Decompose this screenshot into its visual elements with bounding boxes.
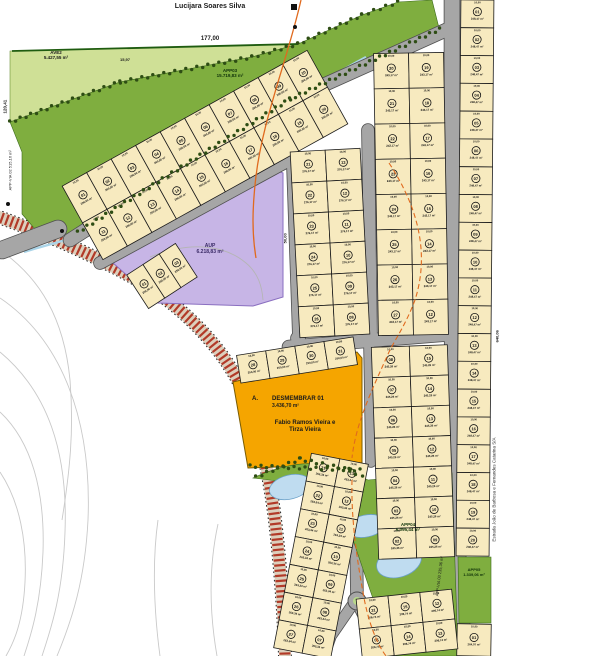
- tree-symbol: [206, 63, 209, 66]
- lot-area: 276,17 m²: [304, 200, 317, 205]
- lot: 10,0013248,47 m²: [458, 333, 491, 361]
- tree-symbol: [282, 465, 285, 468]
- lot-area: 276,17 m²: [344, 291, 357, 296]
- lot-front-dim: 10,00: [471, 624, 478, 628]
- tree-symbol: [279, 104, 282, 107]
- tree-symbol: [349, 467, 352, 470]
- tree-symbol: [264, 111, 267, 114]
- lot: 10,0003248,47 m²: [460, 55, 493, 83]
- lot: 10,0014245,26 m²: [410, 375, 449, 407]
- lot-front-dim: 10,00: [474, 28, 481, 32]
- tree-symbol: [308, 87, 311, 90]
- desmembrar-owner: Fabio Ramos Vieira e Tirza Vieira: [250, 420, 360, 434]
- lot-front-dim: 10,00: [473, 112, 480, 116]
- tree-symbol: [279, 48, 282, 51]
- lot-area: 276,17 m²: [339, 198, 352, 203]
- lot: 10,0016243,17 m²: [410, 158, 446, 194]
- left-road-label: APP-VIA 02 515,16 m²: [9, 135, 14, 205]
- tree-symbol: [354, 68, 357, 71]
- tree-symbol: [368, 59, 371, 62]
- tree-symbol: [184, 67, 187, 70]
- lot: 10,0013206,74 m²: [423, 619, 458, 652]
- lot: 10,0027263,34 m²: [274, 620, 308, 653]
- lot-area: 248,47 m²: [466, 545, 479, 549]
- tree-symbol: [129, 199, 132, 202]
- lot-front-dim: 10,00: [426, 229, 433, 233]
- lot-front-dim: 10,00: [388, 54, 395, 58]
- lot-area: 243,17 m²: [389, 284, 402, 288]
- tree-symbol: [66, 100, 69, 103]
- lot-front-dim: 10,00: [430, 497, 437, 501]
- tree-symbol: [313, 36, 316, 39]
- lot-area: 264,07 m²: [468, 642, 481, 646]
- lot: 10,0012263,34 m²: [329, 487, 363, 520]
- app04-area: 6.095,44 m²: [378, 527, 438, 532]
- right-road-dimension: 640,06: [496, 316, 501, 356]
- lot-front-dim: 10,00: [436, 621, 443, 626]
- tree-symbol: [95, 218, 98, 221]
- tree-symbol: [353, 469, 356, 472]
- tree-symbol: [234, 60, 237, 63]
- lot-front-dim: 10,00: [426, 376, 433, 380]
- lot: 10,0017243,17 m²: [410, 123, 446, 159]
- lot: 10,0009263,34 m²: [313, 570, 347, 603]
- lot: 10,0015248,47 m²: [457, 389, 490, 417]
- lot-boundary: [374, 88, 410, 124]
- lot: 10,0011263,34 m²: [324, 514, 358, 547]
- lot-front-dim: 10,00: [339, 149, 346, 153]
- tree-symbol: [328, 27, 331, 30]
- tree-symbol: [404, 45, 407, 48]
- lot: 10,0004245,26 m²: [376, 467, 415, 499]
- tree-symbol: [374, 59, 377, 62]
- lot-area: 248,47 m²: [468, 295, 481, 299]
- tree-symbol: [260, 474, 263, 477]
- lot-area: 245,26 m²: [428, 514, 441, 518]
- tree-symbol: [255, 117, 258, 120]
- tree-symbol: [250, 54, 253, 57]
- tree-symbol: [113, 81, 116, 84]
- tree-symbol: [355, 17, 358, 20]
- tree-symbol: [151, 182, 154, 185]
- tree-symbol: [100, 216, 103, 219]
- tree-symbol: [343, 466, 346, 469]
- lot: 10,0020243,17 m²: [374, 53, 410, 89]
- tree-symbol: [259, 464, 262, 467]
- tree-symbol: [379, 8, 382, 11]
- tree-symbol: [60, 100, 63, 103]
- tree-symbol: [50, 104, 53, 107]
- tree-symbol: [208, 147, 211, 150]
- lot: 10,0015245,26 m²: [409, 345, 448, 377]
- app04-area-label: APP04 6.095,44 m²: [378, 522, 438, 532]
- lot: 10,0005245,26 m²: [374, 437, 413, 469]
- lot-front-dim: 10,00: [427, 406, 434, 410]
- lot: 10,0015243,17 m²: [411, 193, 447, 229]
- tree-symbol: [304, 460, 307, 463]
- tree-symbol: [408, 40, 411, 43]
- lot: 10,0011245,26 m²: [414, 466, 453, 498]
- tree-symbol: [332, 464, 335, 467]
- lot: 10,0012248,47 m²: [458, 306, 491, 334]
- tree-symbol: [309, 468, 312, 471]
- tree-symbol: [339, 22, 342, 25]
- lot-boundary: [374, 53, 410, 89]
- tree-symbol: [179, 70, 182, 73]
- lot: 10,0021276,17 m²: [290, 150, 327, 183]
- lot-front-dim: 10,00: [470, 417, 477, 421]
- lot-front-dim: 10,00: [391, 468, 398, 472]
- road: [2, 229, 58, 250]
- ave2-area: 5.427,55 m²: [26, 55, 86, 60]
- lot: 10,0024276,17 m²: [295, 243, 332, 276]
- tree-symbol: [108, 85, 111, 88]
- tree-symbol: [104, 212, 107, 215]
- tree-symbol: [217, 60, 220, 63]
- lot-front-dim: 10,00: [388, 89, 395, 93]
- tree-symbol: [35, 112, 38, 115]
- lot-front-dim: 10,00: [471, 334, 478, 338]
- lot-boundary: [375, 124, 411, 160]
- lot-front-dim: 10,00: [308, 213, 315, 217]
- lot: 10,0012245,26 m²: [412, 436, 451, 468]
- lot: 10,0029250,00 m²: [266, 346, 300, 378]
- lot-area: 248,47 m²: [469, 211, 482, 215]
- lot-front-dim: 10,00: [341, 180, 348, 184]
- tree-symbol: [265, 470, 268, 473]
- tree-symbol: [360, 12, 363, 15]
- lot-front-dim: 10,00: [470, 473, 477, 477]
- lot: 10,0017248,47 m²: [457, 445, 490, 473]
- lot: 10,0008245,26 m²: [371, 346, 410, 378]
- lot: 10,0019243,17 m²: [409, 52, 445, 88]
- tree-symbol: [315, 462, 318, 465]
- lot: 10,0006248,47 m²: [459, 139, 492, 167]
- tree-symbol: [146, 76, 149, 79]
- contour-line: [0, 472, 25, 656]
- lot-area: 245,26 m²: [385, 364, 398, 368]
- tree-symbol: [271, 470, 274, 473]
- quadra-east-strip-south: 10,0001264,07 m²: [457, 624, 492, 656]
- lot-area: 245,26 m²: [386, 394, 399, 398]
- tree-symbol: [314, 87, 317, 90]
- tree-symbol: [285, 44, 288, 47]
- tree-symbol: [367, 12, 370, 15]
- contour-line: [0, 352, 65, 656]
- tree-symbol: [18, 115, 21, 118]
- tree-symbol: [198, 153, 201, 156]
- quadra-mid-left: 10,0021276,17 m²10,0013276,17 m²10,00222…: [290, 148, 370, 337]
- lot: 10,0001264,07 m²: [457, 624, 492, 656]
- tree-symbol: [142, 188, 145, 191]
- lot-front-dim: 10,00: [473, 139, 480, 143]
- lot-area: 248,47 m²: [470, 128, 483, 132]
- tree-symbol: [29, 112, 32, 115]
- lot-area: 243,17 m²: [388, 249, 401, 253]
- lot: 10,0012243,17 m²: [413, 299, 449, 335]
- lot-boundary: [409, 88, 445, 124]
- lot-area: 243,17 m²: [422, 178, 435, 182]
- tree-symbol: [334, 77, 337, 80]
- tree-symbol: [296, 41, 299, 44]
- tree-symbol: [428, 31, 431, 34]
- tree-symbol: [248, 463, 251, 466]
- lot-area: 243,17 m²: [386, 108, 399, 112]
- purple-edge-dimension: 50,00: [284, 220, 289, 256]
- lot-area: 243,17 m²: [389, 320, 402, 324]
- lot-area: 248,47 m²: [471, 44, 484, 48]
- lot-front-dim: 10,00: [391, 265, 398, 269]
- contour-line: [0, 412, 43, 656]
- tree-symbol: [372, 8, 375, 11]
- lot-area: 245,26 m²: [423, 363, 436, 367]
- lot-area: 276,17 m²: [302, 169, 315, 174]
- tree-symbol: [358, 467, 361, 470]
- top-boundary-dimension: 177,00: [150, 36, 270, 43]
- lot: 10,0030250,00 m²: [295, 342, 329, 374]
- lot-boundary: [409, 52, 445, 88]
- lot: 10,0014206,74 m²: [391, 622, 426, 655]
- tree-symbol: [302, 41, 305, 44]
- lot-area: 245,26 m²: [387, 425, 400, 429]
- lot-front-dim: 10,00: [471, 362, 478, 366]
- tree-symbol: [214, 146, 217, 149]
- tree-symbol: [361, 474, 364, 477]
- tree-symbol: [354, 473, 357, 476]
- tree-symbol: [217, 141, 220, 144]
- tree-symbol: [262, 51, 265, 54]
- tree-symbol: [85, 223, 88, 226]
- lot-front-dim: 10,00: [470, 529, 477, 533]
- tree-symbol: [344, 73, 347, 76]
- lot-boundary: [410, 158, 446, 194]
- tree-symbol: [394, 49, 397, 52]
- tree-symbol: [135, 78, 138, 81]
- lot-front-dim: 10,00: [401, 594, 408, 599]
- contour-line: [0, 250, 72, 520]
- tree-symbol: [45, 108, 48, 111]
- tree-symbol: [71, 96, 74, 99]
- tree-symbol: [303, 465, 306, 468]
- tree-symbol: [110, 211, 113, 214]
- lot-area: 243,17 m²: [421, 143, 434, 147]
- lot-boundary: [375, 159, 411, 195]
- tree-symbol: [398, 45, 401, 48]
- lot-front-dim: 10,00: [369, 598, 376, 603]
- lot: 10,0024263,34 m²: [290, 537, 324, 570]
- app03-area-label: APP03 15.719,83 m²: [198, 68, 262, 78]
- lot: 10,0012276,17 m²: [327, 179, 364, 212]
- lot: 10,0014248,47 m²: [458, 361, 491, 389]
- lot-front-dim: 10,00: [470, 445, 477, 449]
- tree-symbol: [299, 456, 302, 459]
- tree-symbol: [314, 466, 317, 469]
- lot-area: 276,17 m²: [345, 322, 358, 327]
- tree-symbol: [204, 151, 207, 154]
- desmembrar-prefix: A.: [252, 396, 258, 403]
- tree-symbol: [304, 91, 307, 94]
- tree-symbol: [91, 222, 94, 225]
- lot-front-dim: 10,00: [473, 167, 480, 171]
- tree-symbol: [254, 474, 257, 477]
- lot-boundary: [378, 300, 414, 336]
- lot-boundary: [412, 229, 448, 265]
- lot-area: 243,17 m²: [387, 179, 400, 183]
- tree-symbol: [190, 68, 193, 71]
- lot: 10,0013243,17 m²: [412, 264, 448, 300]
- lot-front-dim: 10,00: [346, 273, 353, 277]
- tree-symbol: [298, 92, 301, 95]
- lot-area: 245,26 m²: [389, 485, 402, 489]
- lot-area: 248,47 m²: [470, 100, 483, 104]
- tree-symbol: [232, 134, 235, 137]
- tree-symbol: [291, 45, 294, 48]
- lot-front-dim: 10,00: [389, 408, 396, 412]
- tree-symbol: [140, 75, 143, 78]
- tree-symbol: [317, 32, 320, 35]
- lot: 10,0026243,17 m²: [377, 264, 413, 300]
- survey-marker-dot: [293, 25, 297, 29]
- tree-symbol: [176, 169, 179, 172]
- lot-area: 248,47 m²: [469, 267, 482, 271]
- ave2-area-label: AVE2 5.427,55 m²: [26, 50, 86, 60]
- lot: 10,0006245,26 m²: [373, 407, 412, 439]
- lot-front-dim: 10,00: [424, 124, 431, 128]
- lot: 10,0009276,17 m²: [332, 272, 369, 305]
- tree-symbol: [274, 105, 277, 108]
- tree-symbol: [358, 64, 361, 67]
- tree-symbol: [384, 4, 387, 7]
- lot-front-dim: 10,00: [429, 467, 436, 471]
- lot-front-dim: 10,00: [474, 56, 481, 60]
- lot-area: 276,17 m²: [310, 323, 323, 328]
- lot-front-dim: 10,00: [306, 182, 313, 186]
- lot: 10,0025276,17 m²: [297, 274, 334, 307]
- tree-symbol: [24, 116, 27, 119]
- tree-symbol: [326, 464, 329, 467]
- lot: 10,0010263,34 m²: [318, 542, 352, 575]
- lot-front-dim: 10,00: [392, 498, 399, 502]
- lot-area: 248,47 m²: [470, 72, 483, 76]
- lot: 10,0011276,17 m²: [328, 210, 365, 243]
- lot: 10,0007248,47 m²: [459, 167, 492, 195]
- lot-area: 245,26 m²: [391, 546, 404, 550]
- lot: 10,0002245,26 m²: [378, 528, 417, 560]
- tree-symbol: [77, 97, 80, 100]
- lot-area: 243,17 m²: [385, 73, 398, 77]
- tree-symbol: [276, 465, 279, 468]
- tree-symbol: [76, 229, 79, 232]
- lot-front-dim: 10,00: [391, 230, 398, 234]
- lot-area: 243,17 m²: [424, 284, 437, 288]
- tree-symbol: [39, 108, 42, 111]
- lot: 10,0013245,26 m²: [411, 405, 450, 437]
- tree-symbol: [328, 78, 331, 81]
- tree-symbol: [388, 50, 391, 53]
- lot-area: 248,47 m²: [467, 461, 480, 465]
- tree-symbol: [119, 205, 122, 208]
- quadra-bottom-center: 10,0031206,74 m²10,0015206,74 m²10,00122…: [356, 589, 458, 656]
- lot-boundary: [412, 264, 448, 300]
- lot: 10,0025243,17 m²: [377, 229, 413, 265]
- tree-symbol: [82, 228, 85, 231]
- lot-area: 243,17 m²: [421, 108, 434, 112]
- lot: 10,0031250,00 m²: [324, 337, 358, 369]
- tree-symbol: [157, 181, 160, 184]
- tree-symbol: [261, 116, 264, 119]
- tree-symbol: [212, 64, 215, 67]
- quadra-east-strip: 10,0001248,47 m²10,0002248,47 m²10,00032…: [456, 0, 494, 556]
- lot-area: 248,47 m²: [467, 517, 480, 521]
- tree-symbol: [251, 122, 254, 125]
- adjacent-owner-label: Lucijara Soares Silva: [120, 3, 300, 11]
- tree-symbol: [321, 461, 324, 464]
- lot-area: 248,47 m²: [467, 406, 480, 410]
- lot-area: 243,17 m²: [424, 319, 437, 323]
- lot-boundary: [411, 193, 447, 229]
- tree-symbol: [223, 140, 226, 143]
- lot: 10,0011248,47 m²: [458, 278, 491, 306]
- lot-area: 248,47 m²: [469, 183, 482, 187]
- lot-area: 243,17 m²: [422, 213, 435, 217]
- contour-line: [0, 298, 88, 656]
- lot-front-dim: 10,00: [313, 306, 320, 310]
- aup-area-label: AUP 6.218,83 m²: [180, 244, 240, 256]
- lot: 10,0021243,17 m²: [374, 88, 410, 124]
- tree-symbol: [129, 77, 132, 80]
- lot-front-dim: 10,00: [392, 300, 399, 304]
- lot: 10,0022276,17 m²: [292, 181, 329, 214]
- lot-area: 248,47 m²: [470, 156, 483, 160]
- lot-front-dim: 10,00: [343, 211, 350, 215]
- desmembrar-area: 3.436,70 m²: [272, 404, 299, 410]
- lot-front-dim: 10,00: [471, 306, 478, 310]
- road: [369, 341, 371, 462]
- tree-symbol: [168, 72, 171, 75]
- lot-front-dim: 10,00: [309, 244, 316, 248]
- lot-area: 248,47 m²: [471, 17, 484, 21]
- tree-symbol: [151, 73, 154, 76]
- tree-symbol: [287, 461, 290, 464]
- tree-symbol: [438, 26, 441, 29]
- tree-symbol: [307, 36, 310, 39]
- tree-symbol: [161, 176, 164, 179]
- lot-area: 245,26 m²: [429, 544, 442, 548]
- lot-area: 248,47 m²: [468, 350, 481, 354]
- lot: 10,0002248,47 m²: [460, 28, 493, 56]
- tree-symbol: [298, 467, 301, 470]
- lot: 10,0005248,47 m²: [460, 111, 493, 139]
- tree-symbol: [81, 93, 84, 96]
- quadra-mid-right: 10,0020243,17 m²10,0019243,17 m²10,00212…: [374, 52, 449, 335]
- lot: 10,0007263,34 m²: [302, 625, 336, 656]
- tree-symbol: [345, 22, 348, 25]
- tree-symbol: [349, 17, 352, 20]
- tree-symbol: [348, 68, 351, 71]
- lot-front-dim: 10,00: [471, 390, 478, 394]
- tree-symbol: [268, 51, 271, 54]
- desmembrar-title: DESMEMBRAR 01: [272, 396, 324, 403]
- lot-front-dim: 10,00: [425, 159, 432, 163]
- tree-symbol: [14, 119, 17, 122]
- lot: 10,0025263,34 m²: [284, 564, 318, 597]
- lot-front-dim: 10,00: [425, 346, 432, 350]
- lot-boundary: [376, 194, 412, 230]
- lot-area: 245,26 m²: [424, 393, 437, 397]
- lot: 10,0026263,34 m²: [279, 592, 313, 625]
- lot-front-dim: 10,00: [428, 436, 435, 440]
- tree-symbol: [287, 467, 290, 470]
